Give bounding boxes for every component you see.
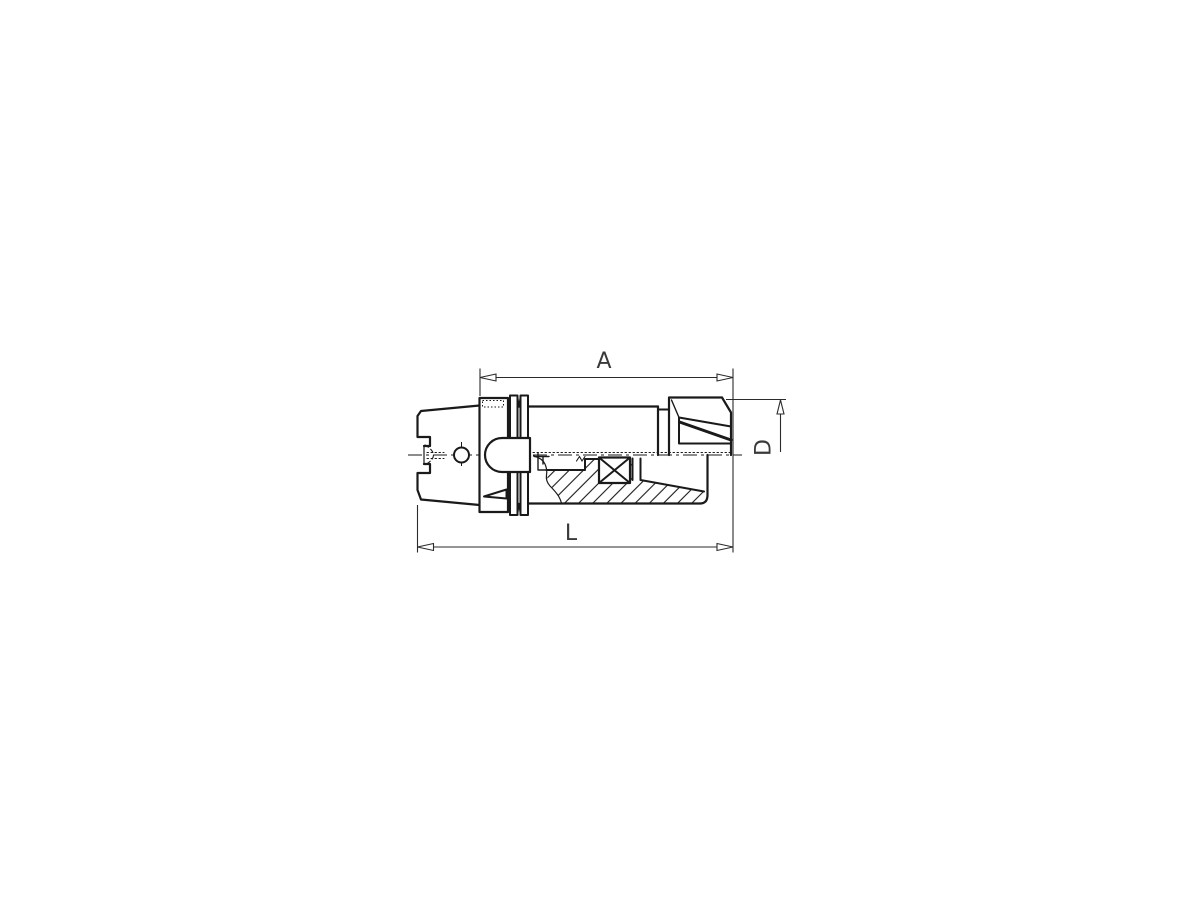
arrowhead-up (777, 400, 784, 414)
set-screw-symbol (599, 458, 630, 484)
drive-hole (454, 448, 469, 463)
arrowhead-left (418, 544, 434, 551)
arrowhead-left (480, 374, 496, 381)
technical-drawing: A D L (0, 0, 1200, 900)
dimension-l-label: L (565, 521, 578, 546)
collet-nut (669, 398, 731, 456)
drawing-canvas: A D L (0, 0, 1200, 900)
nut-extraction-slot (679, 418, 731, 444)
gripper-groove-capsule (485, 438, 530, 472)
arrowhead-right (717, 544, 733, 551)
dimension-a-label: A (596, 349, 611, 374)
dimension-d-label: D (752, 439, 777, 456)
arrowhead-right (717, 374, 733, 381)
